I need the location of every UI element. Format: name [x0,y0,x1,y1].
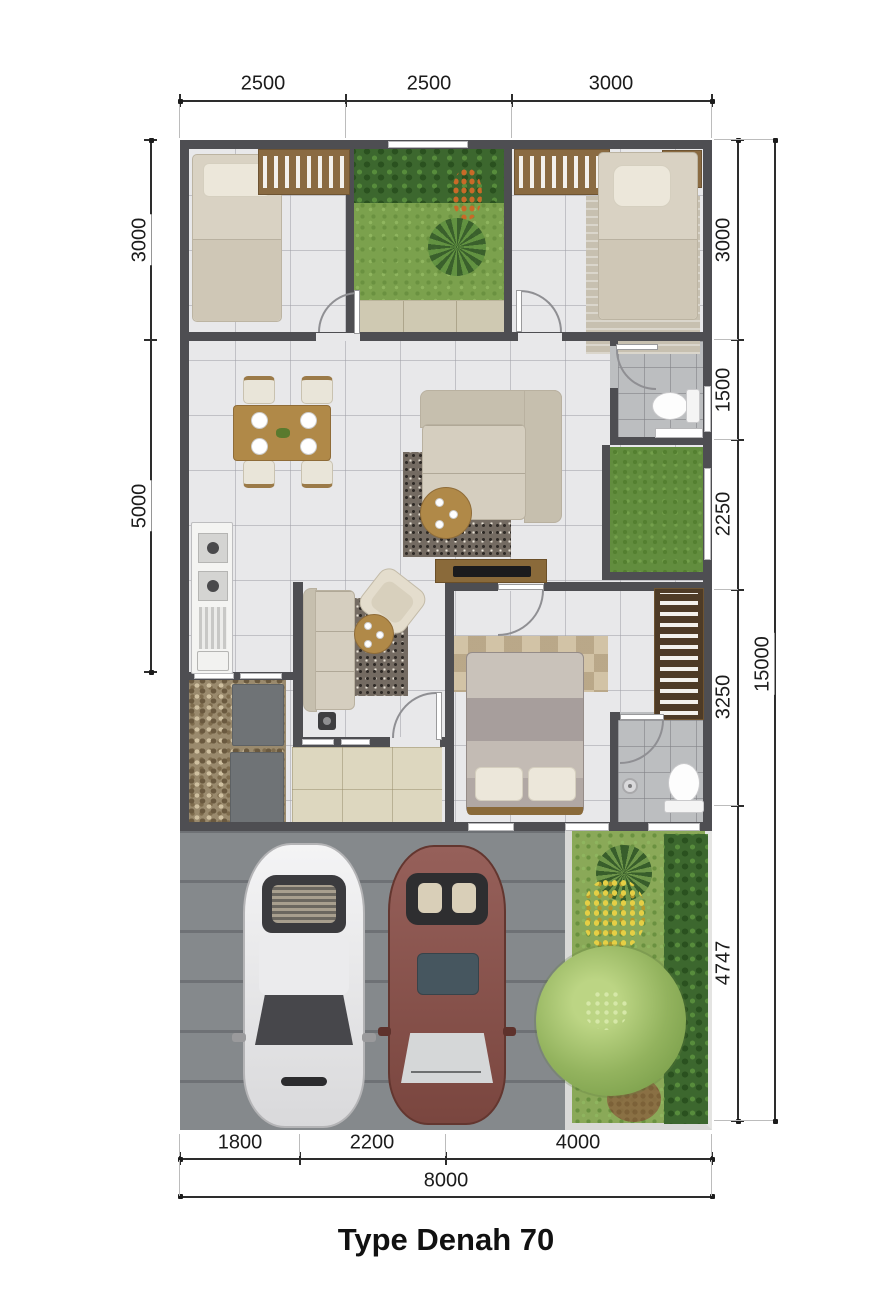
dim-top-2: 2500 [404,73,455,96]
court-orange-flowers [452,168,482,220]
stepping-slab [232,684,284,746]
dim-ext [179,1134,180,1156]
dim-ext [711,1134,712,1156]
wall-mid-horizontal [180,332,712,341]
car-rear-deck [272,885,336,923]
dim-line-right [737,140,739,1122]
pillow [475,767,523,801]
dim-ext [711,1160,712,1196]
toilet [668,763,700,803]
inner-courtyard-grass [610,447,703,572]
dining-chair [243,460,275,488]
dim-line-right-total [774,140,776,1122]
car-windshield [401,1033,493,1083]
dim-left-2: 5000 [129,481,152,532]
wardrobe [258,149,350,195]
cup [364,640,372,648]
cup [449,510,458,519]
dim-dot [149,670,154,675]
dim-right-total: 15000 [752,633,775,695]
dim-ext [714,1120,776,1121]
dim-bottom-2: 2200 [347,1132,398,1155]
court-plant-strip [346,145,512,203]
dining-table [233,405,331,461]
dim-ext [179,104,180,138]
drainer [199,607,227,649]
dim-top-1: 2500 [238,73,289,96]
cup [435,520,444,529]
single-bed [598,152,698,320]
car-mirror [232,1033,246,1042]
wall-courtR-left [602,445,610,580]
dim-dot [773,1119,778,1124]
stepping-slab [230,752,284,824]
wall-family-left [293,582,303,747]
floor-plan-sheet: 2500 2500 3000 3000 5000 3000 1500 2250 … [0,0,877,1313]
dim-ext [445,1134,446,1156]
side-table [354,614,394,654]
dim-right-2: 1500 [713,365,736,416]
window [704,386,711,432]
car-mirror [362,1033,376,1042]
window [388,141,468,148]
wall-building-bottom [180,822,712,831]
toilet [652,392,688,420]
dining-chair [301,376,333,404]
car-mirror [503,1027,516,1036]
window [704,468,711,560]
sofa-back [524,390,562,523]
wardrobe-slats [519,156,605,188]
window [240,673,282,679]
tv-console [435,559,547,583]
tv [453,566,531,577]
window-sill [655,428,703,438]
window-sill [468,823,514,831]
car-maroon [388,845,506,1125]
centerpiece [276,428,290,438]
kitchen-sink [197,651,229,671]
toilet-tank [686,389,700,423]
pillow [613,165,671,207]
car-windshield [255,995,353,1045]
stove-burner [198,571,228,601]
plate [251,412,268,429]
car-grille [281,1077,327,1086]
window [341,739,370,745]
dim-ext [345,104,346,138]
wardrobe [514,149,610,195]
dim-dot [149,138,154,143]
garden-big-tree [536,946,686,1096]
dim-ext [714,589,738,590]
lamp-dot [323,717,331,725]
blanket [599,239,697,319]
car-rear-window [406,873,488,925]
shower-dot [628,784,632,788]
stove-burner [198,533,228,563]
wall-outer-left [180,140,189,830]
dining-chair [301,460,333,488]
court-fern [428,218,486,276]
window [302,739,334,745]
court-tile-strip [350,300,508,332]
window-sill [648,823,700,831]
dim-right-4: 3250 [713,672,736,723]
car-mirror [378,1027,391,1036]
car-sunroof [417,953,479,995]
wall-master-left [445,582,454,830]
dim-ext [511,104,512,138]
tree-highlight [584,990,628,1030]
dim-tick [144,339,157,341]
door-leaf [620,714,664,720]
car-headrest [418,883,442,913]
sofa2-seat [315,590,355,710]
door-gap [390,737,440,747]
cup [364,622,372,630]
wall-bath-top-bottom [610,437,712,445]
dim-ext [714,139,776,140]
plate [251,438,268,455]
car-roof [259,937,349,995]
burner-ring [207,580,219,592]
wall-courtR-bottom [602,572,712,580]
coffee-table [420,487,472,539]
dim-ext [714,439,738,440]
plate [300,438,317,455]
dim-bottom-1: 1800 [215,1132,266,1155]
dim-bottom-3: 4000 [553,1132,604,1155]
blanket [193,239,281,321]
door-leaf [516,290,522,332]
dim-line-bottom-total [180,1196,713,1198]
garden-yellow-flowers [583,878,645,950]
window-sill [565,823,609,831]
dim-left-1: 3000 [129,215,152,266]
dim-ext [711,104,712,138]
cup [376,631,384,639]
dim-dot [773,138,778,143]
floor-lamp [318,712,336,730]
dining-chair [243,376,275,404]
door-leaf [616,344,658,350]
dim-right-1: 3000 [713,215,736,266]
pillow [528,767,576,801]
shower-head [622,778,638,794]
double-bed [466,652,584,814]
carport-paving [180,830,565,1130]
car-wiper [411,1071,481,1073]
toilet-tank [664,800,704,813]
dim-right-3: 2250 [713,489,736,540]
wall-bath-bot-left [610,720,618,830]
door-gap [316,333,360,341]
dim-ext [179,1160,180,1196]
kitchen-counter [191,522,233,674]
plate [300,412,317,429]
car-headrest [452,883,476,913]
wardrobe [654,588,704,720]
dim-line-top [180,100,713,102]
wall-court-right [504,145,512,337]
door-leaf [498,584,544,590]
bed-frame [467,807,583,815]
terrace-floor [292,747,442,830]
plan-title: Type Denah 70 [338,1222,555,1258]
dim-bottom-total: 8000 [421,1170,472,1193]
door-gap [518,333,562,341]
dim-top-3: 3000 [586,73,637,96]
dim-ext [714,805,738,806]
dim-ext [714,339,738,340]
burner-ring [207,542,219,554]
door-leaf [436,692,442,740]
door-leaf [354,290,360,334]
car-rear-window [262,875,346,933]
wardrobe-slats [263,156,345,188]
dim-right-5: 4747 [713,938,736,989]
wardrobe-slats [660,593,698,715]
car-white [243,843,365,1128]
cup [435,498,444,507]
dim-ext [299,1134,300,1156]
